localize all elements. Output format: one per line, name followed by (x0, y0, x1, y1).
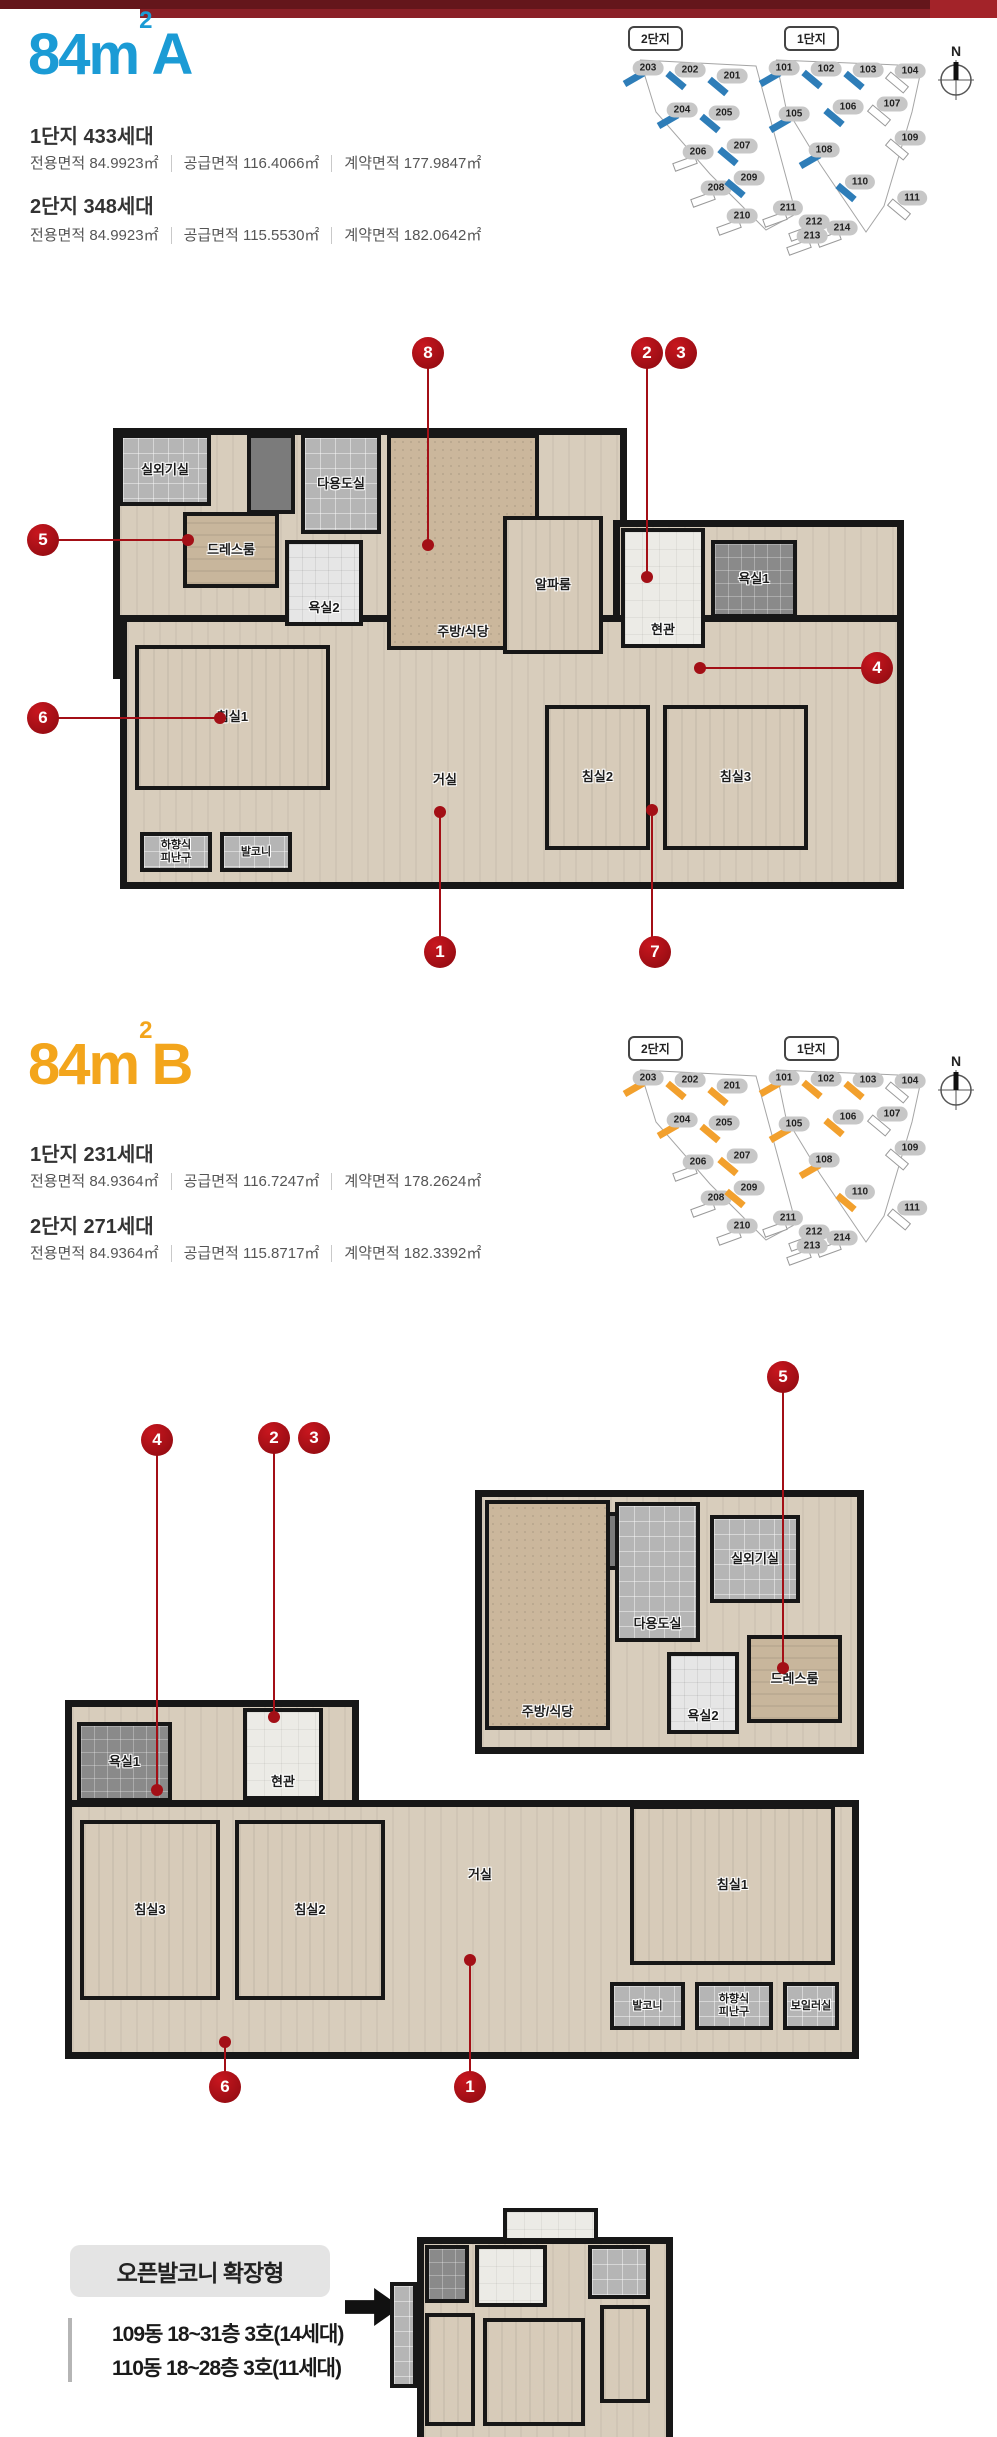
building-206: 206 (683, 145, 714, 160)
plan-marker-6: 6 (27, 702, 59, 734)
room-label: 하향식 피난구 (719, 1993, 749, 2018)
room-room-center (483, 2318, 585, 2426)
plan-marker-4: 4 (141, 1424, 173, 1456)
room-entry-area (475, 2245, 547, 2307)
room-label: 주방/식당 (522, 1705, 573, 1720)
room-label: 침실1 (717, 1878, 748, 1893)
room-label: 보일러실 (791, 2000, 831, 2013)
room-label: 침실2 (294, 1903, 325, 1918)
building-210: 210 (727, 1219, 758, 1234)
plan-marker-2: 2 (631, 337, 663, 369)
room-upper-extension (503, 2208, 598, 2242)
complex-2-areas: 전용면적 84.9364㎡공급면적 115.8717㎡계약면적 182.3392… (30, 1242, 481, 1263)
building-201: 201 (717, 1079, 748, 1094)
building-202: 202 (675, 63, 706, 78)
room-room-left (425, 2313, 475, 2426)
building-203: 203 (633, 1071, 664, 1086)
complex-1-name: 1단지 433세대 (30, 120, 154, 149)
building-108: 108 (809, 1153, 840, 1168)
plan-marker-5: 5 (767, 1361, 799, 1393)
room-label: 실외기실 (731, 1552, 779, 1567)
unit-title-type: B (151, 1032, 191, 1097)
room-label: 욕실1 (109, 1755, 140, 1770)
unit-title-main: 84m (28, 1032, 138, 1097)
building-213: 213 (797, 229, 828, 244)
complex-2-areas: 전용면적 84.9923㎡공급면적 115.5530㎡계약면적 182.0642… (30, 224, 481, 245)
site-map-complex1-label: 1단지 (784, 26, 839, 51)
building-202: 202 (675, 1073, 706, 1088)
room-label: 드레스룸 (771, 1672, 819, 1687)
building-110: 110 (845, 175, 875, 190)
building-203: 203 (633, 61, 664, 76)
marker-dot-5 (777, 1662, 789, 1674)
plan-marker-1: 1 (424, 936, 456, 968)
svg-text:N: N (951, 1053, 961, 1069)
room-label: 침실2 (582, 770, 613, 785)
room-label: 발코니 (241, 846, 271, 859)
building-106: 106 (833, 100, 864, 115)
site-map-b: 2032022012042052062072082092102112122142… (616, 1026, 991, 1261)
building-207: 207 (727, 1149, 758, 1164)
unit-title-main: 84m (28, 22, 138, 87)
building-210: 210 (727, 209, 758, 224)
marker-dot-6 (219, 2036, 231, 2048)
building-floor-info-1: 109동 18~31층 3호(14세대) (112, 2318, 343, 2348)
building-212: 212 (799, 215, 830, 230)
room-label: 욕실2 (308, 601, 339, 616)
supply-area: 공급면적 115.8717㎡ (171, 1245, 320, 1262)
building-102: 102 (811, 62, 842, 77)
plan-marker-2: 2 (258, 1422, 290, 1454)
room-dress-room: 드레스룸 (183, 512, 279, 588)
plan-marker-3: 3 (665, 337, 697, 369)
building-107: 107 (877, 1107, 908, 1122)
plan-marker-7: 7 (639, 936, 671, 968)
room-bedroom-2: 침실2 (235, 1820, 385, 2000)
marker-dot-8 (422, 539, 434, 551)
marker-dot-2 (268, 1711, 280, 1723)
building-209: 209 (734, 171, 765, 186)
building-110: 110 (845, 1185, 875, 1200)
room-label: 다용도실 (634, 1617, 682, 1632)
exclusive-area: 전용면적 84.9923㎡ (30, 155, 159, 172)
marker-dot-2 (641, 571, 653, 583)
building-207: 207 (727, 139, 758, 154)
room-label: 실외기실 (141, 463, 189, 478)
room-label: 알파룸 (535, 578, 571, 593)
room-bedroom-2: 침실2 (545, 705, 650, 850)
marker-dot-4 (694, 662, 706, 674)
info-divider (68, 2318, 72, 2382)
building-108: 108 (809, 143, 840, 158)
room-label: 발코니 (632, 2000, 662, 2013)
complex-1-name: 1단지 231세대 (30, 1138, 154, 1167)
building-204: 204 (667, 103, 698, 118)
room-living-room: 거실 (420, 1845, 540, 1905)
unit-title-sup: 2 (139, 7, 150, 34)
building-211: 211 (773, 201, 803, 216)
contract-area: 계약면적 182.3392㎡ (331, 1245, 481, 1262)
room-label: 현관 (271, 1775, 295, 1790)
room-label: 거실 (433, 773, 457, 788)
room-label: 침실3 (134, 1903, 165, 1918)
complex-2-name: 2단지 271세대 (30, 1210, 154, 1239)
building-204: 204 (667, 1113, 698, 1128)
site-map-complex1-label: 1단지 (784, 1036, 839, 1061)
room-escape-hatch: 하향식 피난구 (140, 832, 212, 872)
plan-marker-4: 4 (861, 652, 893, 684)
building-206: 206 (683, 1155, 714, 1170)
room-bathroom-2: 욕실2 (285, 540, 363, 626)
building-103: 103 (853, 1073, 884, 1088)
exclusive-area: 전용면적 84.9364㎡ (30, 1173, 159, 1190)
building-101: 101 (769, 61, 800, 76)
building-201: 201 (717, 69, 748, 84)
marker-dot-5 (182, 534, 194, 546)
svg-text:N: N (951, 43, 961, 59)
room-label: 욕실2 (687, 1709, 718, 1724)
room-label: 드레스룸 (207, 543, 255, 558)
complex-1-areas: 전용면적 84.9923㎡공급면적 116.4066㎡계약면적 177.9847… (30, 152, 481, 173)
building-floor-info-2: 110동 18~28층 3호(11세대) (112, 2352, 341, 2382)
building-104: 104 (895, 1074, 926, 1089)
room-room-right (600, 2305, 650, 2403)
compass-icon: N (934, 42, 978, 104)
building-105: 105 (779, 1117, 810, 1132)
room-balcony: 발코니 (610, 1982, 685, 2030)
room-entrance: 현관 (243, 1708, 323, 1800)
marker-line-4 (700, 667, 877, 669)
building-101: 101 (769, 1071, 800, 1086)
marker-dot-7 (646, 804, 658, 816)
room-entrance: 현관 (621, 528, 705, 648)
room-bathroom-1: 욕실1 (711, 540, 797, 618)
section-84a: 84m2A 1단지 433세대 전용면적 84.9923㎡공급면적 116.40… (0, 0, 997, 1010)
section-84b: 84m2B 1단지 231세대 전용면적 84.9364㎡공급면적 116.72… (0, 1010, 997, 2140)
room-bathroom-2 (588, 2245, 650, 2299)
marker-line-7 (651, 810, 653, 952)
building-111: 111 (897, 191, 927, 206)
room-kitchen-dining: 주방/식당 (485, 1500, 610, 1730)
plan-marker-8: 8 (412, 337, 444, 369)
marker-dot-4 (151, 1784, 163, 1796)
room-dress-room: 드레스룸 (747, 1635, 842, 1723)
exclusive-area: 전용면적 84.9364㎡ (30, 1245, 159, 1262)
supply-area: 공급면적 116.4066㎡ (171, 155, 320, 172)
room-shaft (247, 434, 295, 514)
building-213: 213 (797, 1239, 828, 1254)
room-boiler-room: 보일러실 (783, 1982, 839, 2030)
building-107: 107 (877, 97, 908, 112)
floor-plan-b: 다용도실실외기실드레스룸욕실2주방/식당현관욕실1침실3침실2거실침실1발코니하… (55, 1490, 855, 2050)
room-label: 다용도실 (317, 477, 365, 492)
building-214: 214 (827, 1231, 858, 1246)
supply-area: 공급면적 116.7247㎡ (171, 1173, 320, 1190)
building-105: 105 (779, 107, 810, 122)
brochure-page: 84m2A 1단지 433세대 전용면적 84.9923㎡공급면적 116.40… (0, 0, 997, 2437)
contract-area: 계약면적 177.9847㎡ (331, 155, 481, 172)
compass-icon: N (934, 1052, 978, 1114)
unit-title-b: 84m2B (28, 1036, 191, 1094)
room-label: 하향식 피난구 (161, 839, 191, 864)
room-label: 현관 (651, 623, 675, 638)
marker-dot-1 (464, 1954, 476, 1966)
room-bathroom-2: 욕실2 (667, 1652, 739, 1734)
marker-line-4 (156, 1440, 158, 1790)
room-outdoor-unit-room: 실외기실 (119, 434, 211, 506)
plan-marker-5: 5 (27, 524, 59, 556)
building-209: 209 (734, 1181, 765, 1196)
marker-dot-1 (434, 806, 446, 818)
room-label: 거실 (468, 1868, 492, 1883)
building-106: 106 (833, 1110, 864, 1125)
marker-line-5 (43, 539, 188, 541)
site-map-a: 2032022012042052062072082092102112122142… (616, 16, 991, 251)
building-205: 205 (709, 106, 740, 121)
building-102: 102 (811, 1072, 842, 1087)
room-escape-hatch: 하향식 피난구 (695, 1982, 773, 2030)
building-214: 214 (827, 221, 858, 236)
supply-area: 공급면적 115.5530㎡ (171, 227, 320, 244)
room-utility-room: 다용도실 (615, 1502, 700, 1642)
open-balcony-badge: 오픈발코니 확장형 (70, 2245, 330, 2297)
building-109: 109 (895, 1141, 926, 1156)
marker-line-2 (646, 353, 648, 577)
marker-line-1 (439, 812, 441, 952)
floor-plan-a: 실외기실다용도실드레스룸욕실2주방/식당알파룸현관욕실1침실1거실침실2침실3하… (105, 420, 890, 875)
marker-line-6 (43, 717, 220, 719)
room-label: 주방/식당 (437, 625, 488, 640)
room-bedroom-1: 침실1 (630, 1805, 835, 1965)
room-living-room: 거실 (385, 750, 505, 810)
exclusive-area: 전용면적 84.9923㎡ (30, 227, 159, 244)
room-bathroom (425, 2245, 469, 2303)
room-label: 침실3 (720, 770, 751, 785)
plan-marker-3: 3 (298, 1422, 330, 1454)
room-label: 욕실1 (738, 572, 769, 587)
site-map-complex2-label: 2단지 (628, 1036, 683, 1061)
plan-marker-1: 1 (454, 2071, 486, 2103)
mini-floor-plan (388, 2208, 668, 2437)
unit-title-a: 84m2A (28, 26, 191, 84)
room-bedroom-3: 침실3 (80, 1820, 220, 2000)
marker-line-5 (782, 1377, 784, 1668)
complex-2-name: 2단지 348세대 (30, 190, 154, 219)
room-side-balcony (390, 2282, 417, 2388)
room-balcony: 발코니 (220, 832, 292, 872)
marker-dot-6 (214, 712, 226, 724)
room-bedroom-3: 침실3 (663, 705, 808, 850)
building-109: 109 (895, 131, 926, 146)
building-103: 103 (853, 63, 884, 78)
building-111: 111 (897, 1201, 927, 1216)
building-205: 205 (709, 1116, 740, 1131)
room-utility-room: 다용도실 (301, 434, 381, 534)
marker-line-1 (469, 1960, 471, 2087)
complex-1-areas: 전용면적 84.9364㎡공급면적 116.7247㎡계약면적 178.2624… (30, 1170, 481, 1191)
building-211: 211 (773, 1211, 803, 1226)
building-104: 104 (895, 64, 926, 79)
plan-marker-6: 6 (209, 2071, 241, 2103)
unit-title-sup: 2 (139, 1017, 150, 1044)
room-outdoor-unit-room: 실외기실 (710, 1515, 800, 1603)
contract-area: 계약면적 182.0642㎡ (331, 227, 481, 244)
site-map-complex2-label: 2단지 (628, 26, 683, 51)
room-alpha-room: 알파룸 (503, 516, 603, 654)
marker-line-8 (427, 353, 429, 545)
marker-line-2 (273, 1438, 275, 1717)
footer-open-balcony: 오픈발코니 확장형 109동 18~31층 3호(14세대) 110동 18~2… (0, 2140, 997, 2437)
contract-area: 계약면적 178.2624㎡ (331, 1173, 481, 1190)
building-212: 212 (799, 1225, 830, 1240)
unit-title-type: A (151, 22, 191, 87)
